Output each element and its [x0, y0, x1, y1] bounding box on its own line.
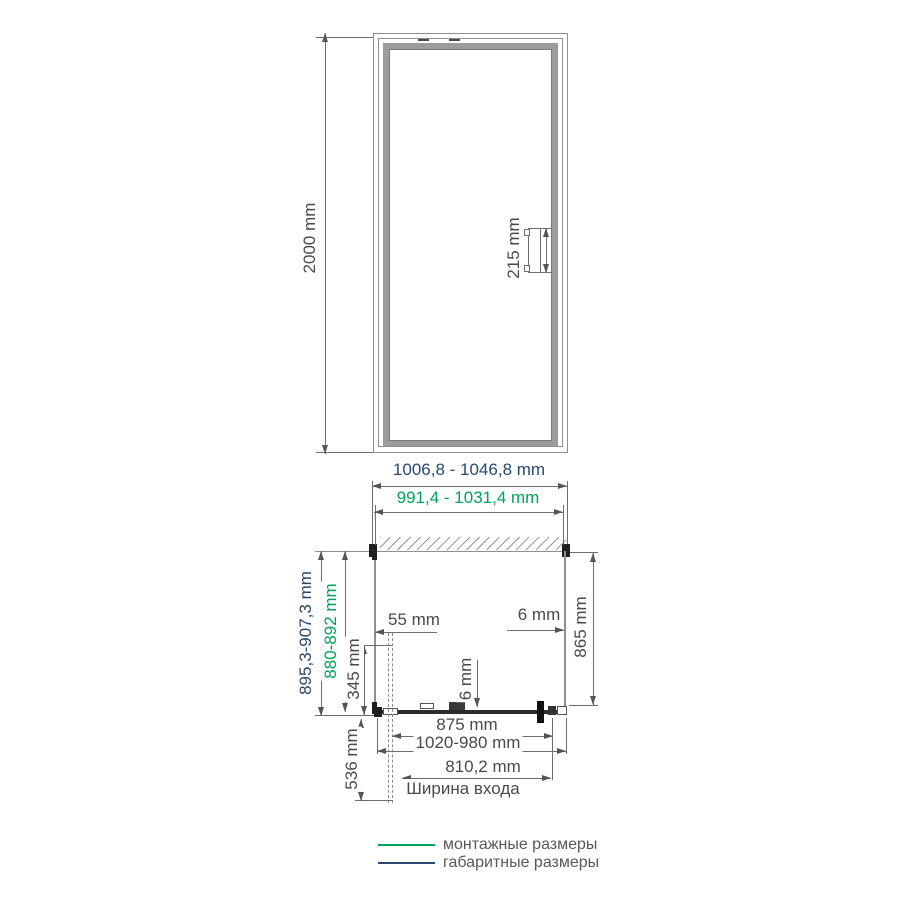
dim-345-line: [364, 645, 365, 715]
ext-line: [563, 505, 564, 545]
dim-mounting-depth-label: 880-892 mm: [321, 581, 341, 680]
arrow-up-icon: [318, 551, 324, 560]
door-end-block-right: [548, 706, 556, 715]
handle-mount-bottom: [524, 265, 530, 272]
arrow-down-icon: [590, 696, 596, 705]
entrance-caption: Ширина входа: [404, 779, 521, 799]
dim-536-label: 536 mm: [342, 726, 362, 791]
arrow-right-icon: [557, 748, 566, 754]
panel-projection-line: [392, 633, 393, 803]
door-roller: [420, 703, 434, 709]
arrow-up-icon: [342, 551, 348, 560]
dim-height-label: 2000 mm: [300, 201, 320, 276]
ext-line: [552, 718, 553, 780]
door-bracket-left: [383, 708, 398, 715]
arrow-up-icon: [590, 553, 596, 562]
arrow-down-icon: [342, 703, 348, 712]
ext-line: [372, 481, 373, 544]
ext-line: [566, 718, 567, 754]
dim-345-label: 345 mm: [344, 636, 364, 701]
door-handle-plan: [537, 701, 544, 723]
arrow-down-icon: [318, 707, 324, 716]
dim-865-line: [593, 553, 594, 705]
dim-mounting-width-line: [374, 512, 563, 513]
arrow-right-icon: [554, 509, 563, 515]
dim-55-line: [375, 632, 437, 633]
arrow-right-icon: [555, 627, 564, 633]
arrow-left-icon: [375, 629, 384, 635]
arrow-left-icon: [372, 483, 381, 489]
wall-hatching: [380, 537, 566, 550]
arrow-down-icon: [322, 445, 328, 454]
arrow-right-icon: [558, 483, 567, 489]
door-roller-block: [449, 702, 465, 710]
shower-door-dimension-diagram: 2000 mm 215 mm: [0, 0, 900, 900]
arrow-right-icon: [542, 775, 551, 781]
dim-1020-980-label: 1020-980 mm: [414, 733, 523, 753]
dim-handle-label: 215 mm: [504, 215, 524, 280]
top-roller-mark: [418, 39, 429, 41]
arrow-left-icon: [392, 733, 401, 739]
dim-height-line: [325, 33, 326, 454]
panel-projection-line: [388, 633, 389, 803]
top-roller-mark: [449, 39, 460, 41]
legend-overall-line: [378, 862, 435, 864]
legend-overall-label: габаритные размеры: [443, 854, 599, 872]
side-panel-left-profile-top: [372, 551, 377, 560]
door-end-cap-right: [557, 706, 567, 715]
arrow-left-icon: [377, 748, 386, 754]
ext-line: [567, 481, 568, 544]
arrow-down-icon: [361, 706, 367, 715]
dim-865-label: 865 mm: [571, 594, 591, 659]
arrow-up-icon: [322, 33, 328, 42]
dim-mounting-width-label: 991,4 - 1031,4 mm: [395, 488, 542, 508]
dim-overall-depth-label: 895,3-907,3 mm: [296, 569, 316, 697]
arrow-down-icon: [543, 264, 549, 273]
handle-mount-top: [524, 229, 530, 236]
door-end-cap-left: [374, 707, 382, 717]
dim-875-label: 875 mm: [434, 715, 499, 735]
arrow-left-icon: [374, 509, 383, 515]
wall-face-line: [315, 551, 567, 552]
side-glass-right: [564, 551, 566, 710]
ext-line: [569, 705, 598, 706]
dim-overall-width-label: 1006,8 - 1046,8 mm: [391, 460, 547, 480]
arrow-down-icon: [474, 698, 480, 707]
dim-6-right-label: 6 mm: [516, 605, 563, 625]
dim-55-label: 55 mm: [386, 610, 442, 630]
dim-overall-width-line: [372, 486, 567, 487]
legend-mounting-label: монтажные размеры: [443, 836, 597, 854]
dim-entrance-label: 810,2 mm: [443, 757, 523, 777]
arrow-down-icon: [358, 792, 364, 801]
dim-6-door-label: 6 mm: [456, 656, 476, 703]
arrow-right-icon: [544, 733, 553, 739]
arrow-up-icon: [543, 228, 549, 237]
legend-mounting-line: [378, 844, 435, 846]
